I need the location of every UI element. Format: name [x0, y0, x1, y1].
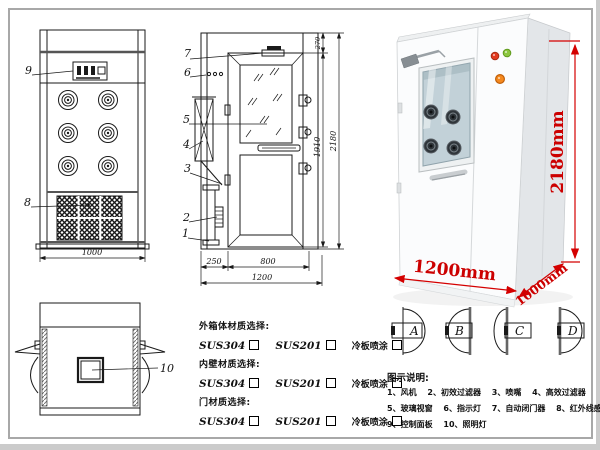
- material-options-row: SUS304 SUS201 冷板喷涂: [199, 410, 379, 429]
- emergency-button[interactable]: [496, 75, 505, 84]
- legend-item: 10、照明灯: [443, 420, 486, 429]
- dim-1910: 1910: [313, 137, 322, 157]
- legend-item: 9、控制面板: [387, 420, 433, 429]
- door-hinges: [299, 95, 311, 174]
- checkbox[interactable]: [249, 340, 259, 350]
- legend-row: 1、风机 2、初效过滤器 3、喷嘴 4、高效过滤器: [387, 387, 599, 398]
- door-type-letter: B: [454, 324, 464, 338]
- door-glass: [423, 63, 470, 166]
- door-type-c: C: [493, 305, 537, 357]
- material-options-row: SUS304 SUS201 冷板喷涂: [199, 334, 379, 353]
- callout-6: 6: [184, 66, 191, 79]
- photo-dim-height: 2180mm: [548, 110, 568, 193]
- spec-sheet: 9 8 1000: [0, 0, 600, 450]
- checkbox[interactable]: [249, 416, 259, 426]
- door-type-letter: A: [409, 324, 419, 338]
- front-width-dim: 1000: [82, 248, 102, 257]
- door-type-letter: D: [567, 324, 578, 338]
- door-swing-left: [15, 341, 40, 393]
- door-type-b: B: [440, 305, 484, 357]
- callout-4: 4: [182, 138, 190, 151]
- legend-item: 2、初效过滤器: [427, 388, 481, 397]
- option-label: SUS201: [275, 416, 321, 428]
- door-type-diagrams: A B C D: [387, 305, 590, 357]
- front-cabinet: [36, 30, 149, 249]
- door-type-d: D: [546, 305, 590, 357]
- door-type-a: A: [387, 305, 431, 357]
- top-view-drawing: 10: [12, 296, 197, 438]
- legend-item: 4、高效过滤器: [532, 388, 586, 397]
- option-label: 冷板喷涂: [352, 380, 388, 390]
- legend-title: 图示说明:: [387, 370, 599, 384]
- product-photo: 2180mm 1200mm 1000mm: [383, 8, 595, 308]
- dim-1200: 1200: [252, 273, 272, 282]
- legend-item: 7、自动闭门器: [492, 404, 546, 413]
- legend-item: 8、红外线感应器: [556, 404, 600, 413]
- dim-270: 270: [314, 37, 322, 50]
- option-label: SUS304: [199, 378, 245, 390]
- door-type-letter: C: [515, 324, 524, 338]
- material-selection: 外箱体材质选择: SUS304 SUS201 冷板喷涂 内壁材质选择: SUS3…: [199, 316, 379, 433]
- front-view-drawing: 9 8 1000: [22, 20, 182, 270]
- material-section-title: 外箱体材质选择:: [199, 319, 379, 332]
- callout-7: 7: [184, 47, 191, 60]
- indicator-light-green: [503, 49, 511, 57]
- legend-item: 5、玻璃视窗: [387, 404, 433, 413]
- option-label: SUS201: [275, 340, 321, 352]
- return-air-grille: [47, 192, 138, 240]
- callout-10: 10: [160, 362, 174, 375]
- control-panel: [73, 62, 107, 80]
- callout-1: 1: [182, 227, 189, 240]
- callout-5: 5: [183, 113, 190, 126]
- option-label: SUS304: [199, 340, 245, 352]
- page-edge-bottom: [0, 444, 600, 450]
- material-section-title: 内壁材质选择:: [199, 357, 379, 370]
- material-section-title: 门材质选择:: [199, 395, 379, 408]
- glass-marks: [246, 68, 282, 137]
- callout-9: 9: [25, 64, 32, 77]
- door: [225, 46, 311, 247]
- option-label: SUS304: [199, 416, 245, 428]
- checkbox[interactable]: [326, 340, 336, 350]
- legend-row: 9、控制面板 10、照明灯: [387, 419, 599, 430]
- side-view-drawing: 7 6 5 4 3 2 1 270 1910 2180 250 800 1: [172, 15, 378, 293]
- nozzles: [59, 91, 118, 176]
- checkbox[interactable]: [326, 416, 336, 426]
- callout-3: 3: [184, 162, 191, 175]
- checkbox[interactable]: [326, 378, 336, 388]
- checkbox[interactable]: [249, 378, 259, 388]
- callout-8: 8: [24, 196, 31, 209]
- option-label: 冷板喷涂: [352, 342, 388, 352]
- legend-row: 5、玻璃视窗 6、指示灯 7、自动闭门器 8、红外线感应器: [387, 403, 599, 414]
- legend-item: 3、喷嘴: [492, 388, 522, 397]
- legend-item: 6、指示灯: [443, 404, 481, 413]
- dim-800: 800: [260, 257, 275, 266]
- legend: 图示说明: 1、风机 2、初效过滤器 3、喷嘴 4、高效过滤器 5、玻璃视窗 6…: [387, 370, 599, 435]
- option-label: 冷板喷涂: [352, 418, 388, 428]
- indicator-light-red: [491, 52, 499, 60]
- material-options-row: SUS304 SUS201 冷板喷涂: [199, 372, 379, 391]
- option-label: SUS201: [275, 378, 321, 390]
- side-cabinet: [192, 33, 318, 249]
- legend-item: 1、风机: [387, 388, 417, 397]
- callout-2: 2: [182, 211, 190, 224]
- top-cabinet: [15, 303, 165, 415]
- dim-2180: 2180: [329, 131, 338, 152]
- dim-250: 250: [205, 257, 221, 266]
